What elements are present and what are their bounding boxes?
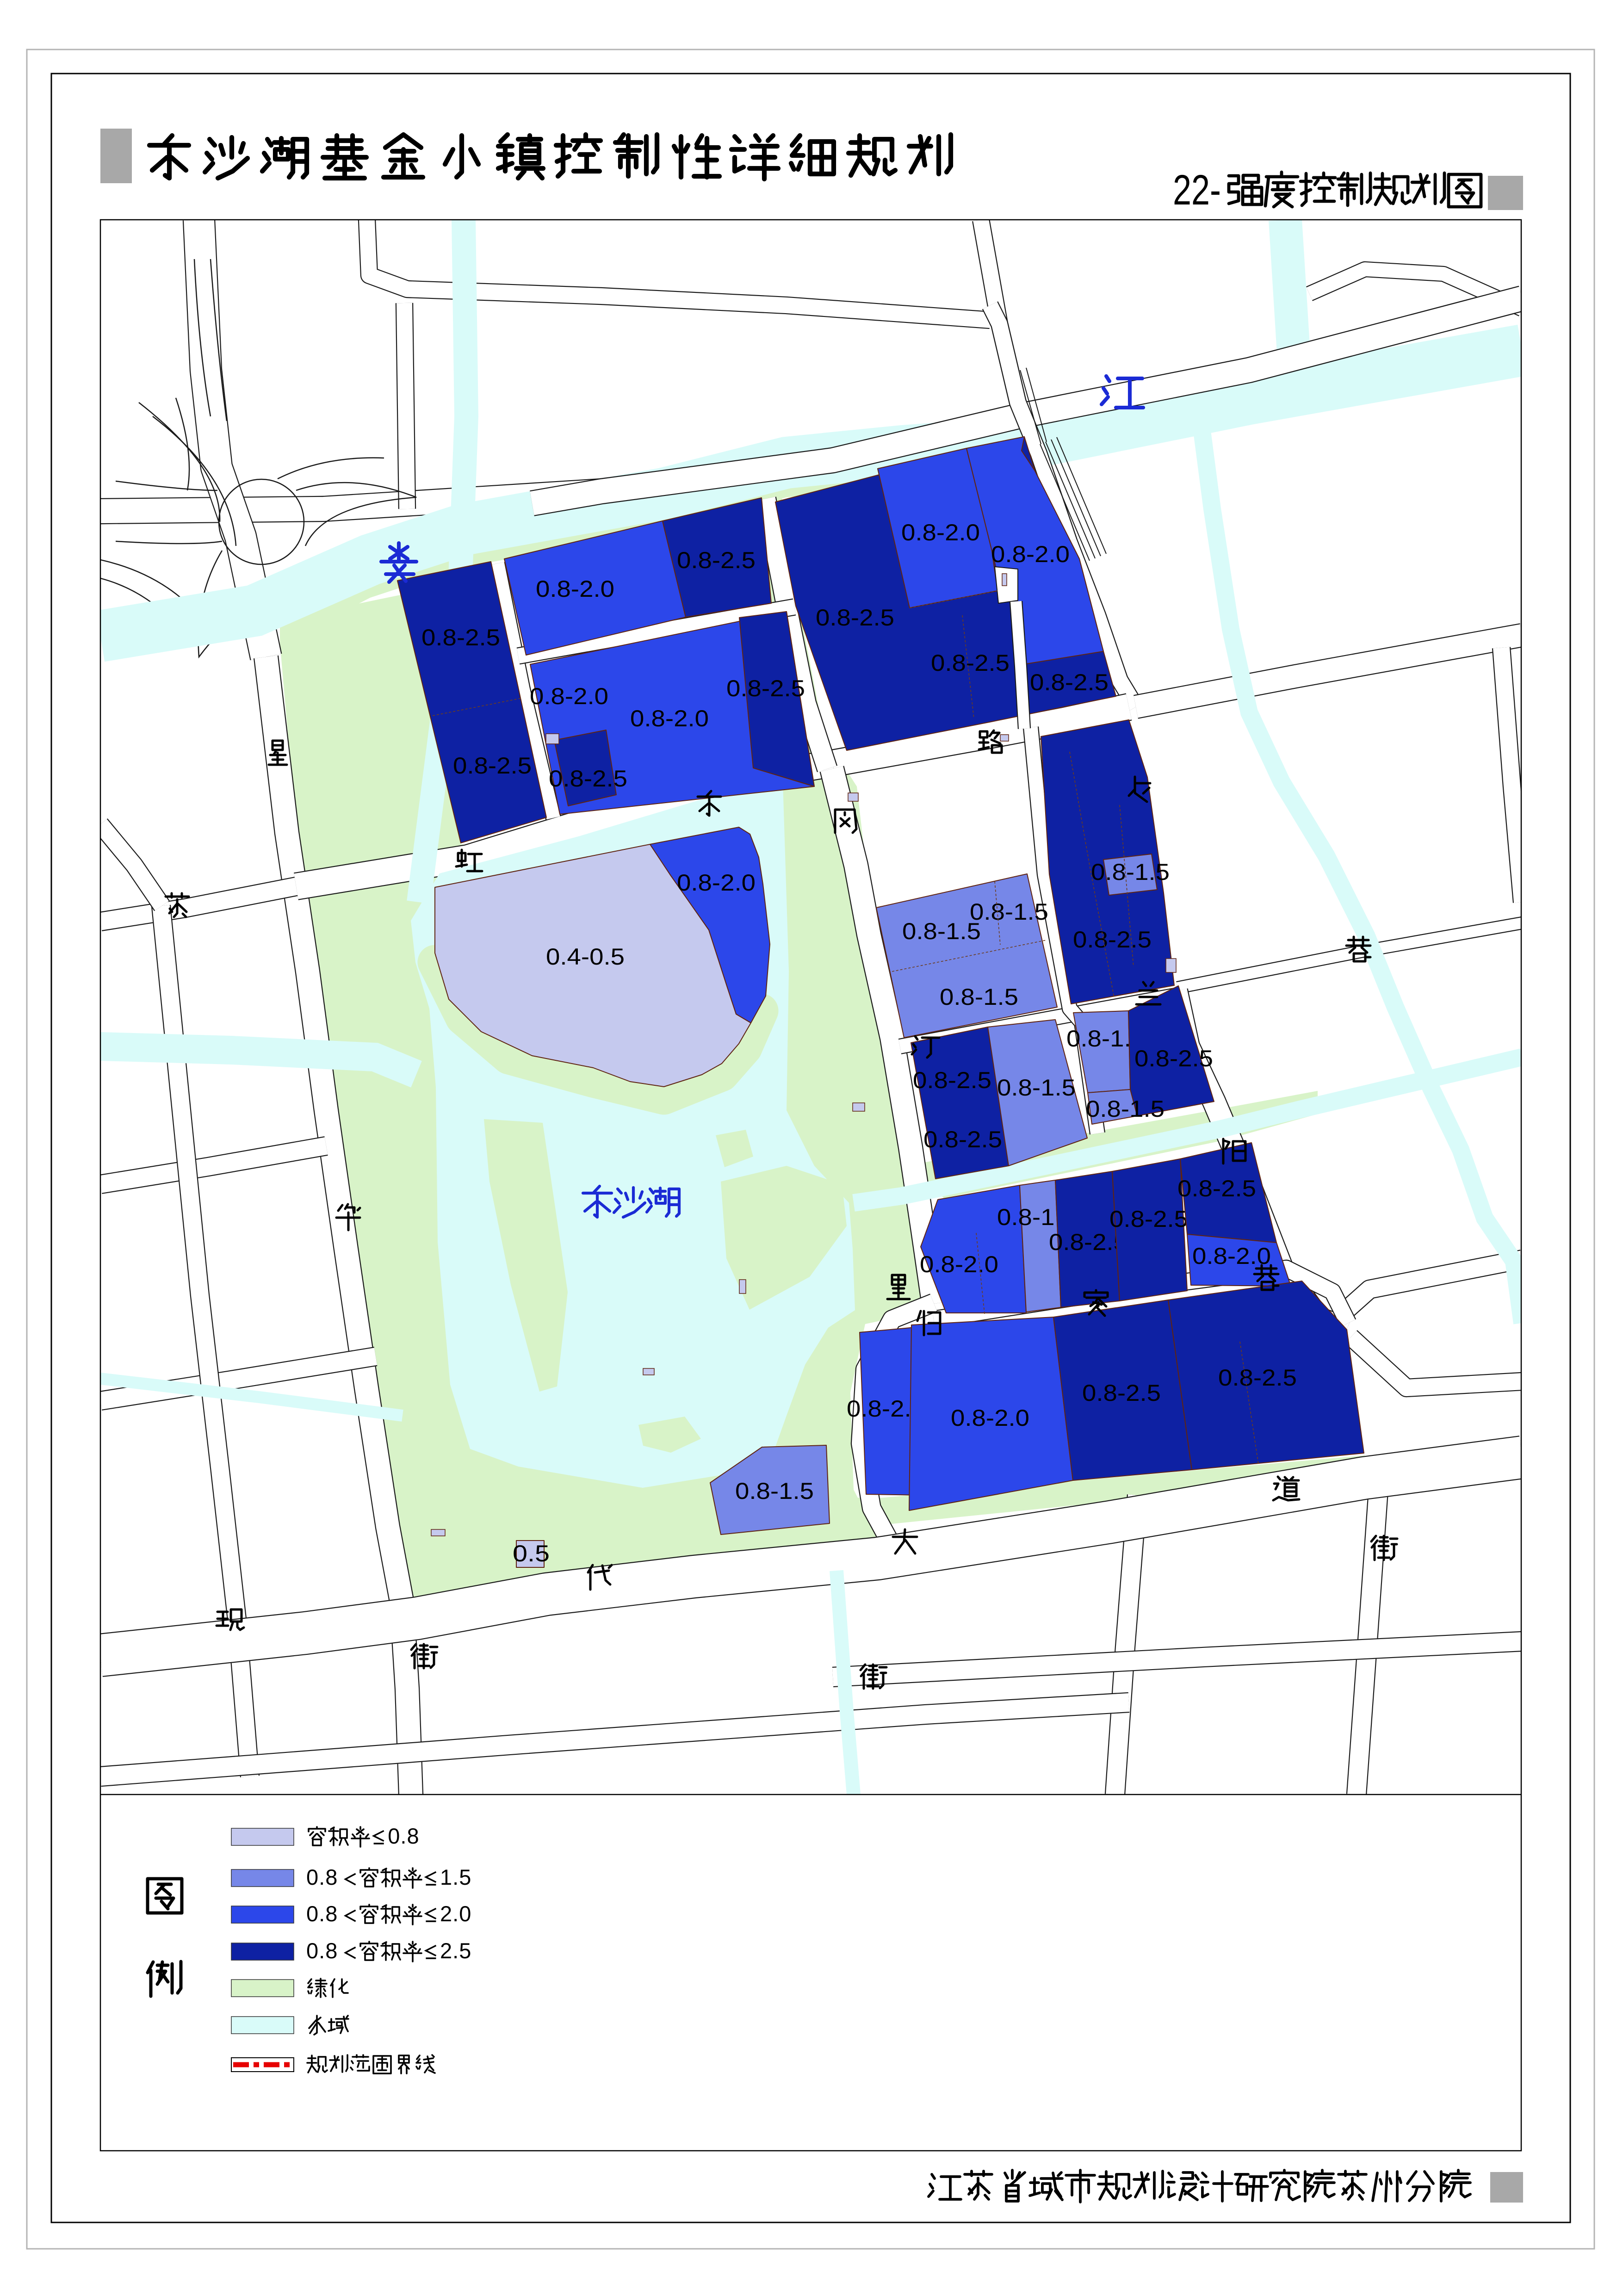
svg-text:0.8-2.0: 0.8-2.0 bbox=[630, 706, 709, 731]
svg-text:0.8: 0.8 bbox=[306, 1901, 338, 1926]
svg-text:1.5: 1.5 bbox=[440, 1865, 471, 1889]
svg-text:0.8-2.5: 0.8-2.5 bbox=[816, 605, 894, 631]
svg-text:0.8-1.5: 0.8-1.5 bbox=[970, 899, 1048, 925]
svg-text:0.8-2.5: 0.8-2.5 bbox=[549, 766, 627, 792]
svg-text:0.8-2.5: 0.8-2.5 bbox=[1082, 1380, 1161, 1406]
svg-text:0.8-1.5: 0.8-1.5 bbox=[902, 918, 981, 944]
svg-text:0.8-2.0: 0.8-2.0 bbox=[951, 1405, 1029, 1431]
svg-text:0.8: 0.8 bbox=[388, 1824, 419, 1848]
svg-text:0.8-2.5: 0.8-2.5 bbox=[1134, 1046, 1213, 1071]
svg-text:22-: 22- bbox=[1173, 167, 1221, 214]
svg-text:0.8-2.0: 0.8-2.0 bbox=[677, 870, 756, 896]
svg-text:0.8-2.5: 0.8-2.5 bbox=[1218, 1365, 1297, 1391]
svg-text:2.0: 2.0 bbox=[440, 1901, 471, 1926]
svg-text:0.8-2.5: 0.8-2.5 bbox=[1109, 1206, 1188, 1232]
svg-text:0.8-2.5: 0.8-2.5 bbox=[421, 625, 500, 650]
svg-text:0.8-2.5: 0.8-2.5 bbox=[1030, 669, 1109, 695]
svg-text:0.8-2.0: 0.8-2.0 bbox=[920, 1251, 998, 1277]
svg-text:0.8-2.5: 0.8-2.5 bbox=[677, 547, 756, 573]
svg-text:0.8-2.5: 0.8-2.5 bbox=[1177, 1176, 1256, 1201]
svg-text:0.8-2.5: 0.8-2.5 bbox=[453, 753, 532, 779]
svg-text:0.8-2.0: 0.8-2.0 bbox=[536, 576, 614, 602]
svg-text:2.5: 2.5 bbox=[440, 1938, 471, 1963]
svg-text:0.8: 0.8 bbox=[306, 1938, 338, 1963]
svg-text:0.8-2.0: 0.8-2.0 bbox=[530, 683, 608, 709]
svg-text:0.8-2.5: 0.8-2.5 bbox=[913, 1067, 991, 1093]
svg-text:0.8-2.5: 0.8-2.5 bbox=[726, 675, 805, 701]
svg-text:0.5: 0.5 bbox=[513, 1541, 550, 1566]
svg-text:0.8-2.0: 0.8-2.0 bbox=[991, 541, 1070, 567]
svg-text:0.8-1.5: 0.8-1.5 bbox=[997, 1075, 1076, 1101]
svg-text:0.8-2.5: 0.8-2.5 bbox=[1073, 927, 1152, 953]
svg-text:0.8-1.5: 0.8-1.5 bbox=[1086, 1096, 1165, 1122]
svg-text:0.8-1.5: 0.8-1.5 bbox=[940, 984, 1018, 1010]
svg-text:0.8-2.5: 0.8-2.5 bbox=[931, 650, 1010, 676]
svg-text:0.8-2.0: 0.8-2.0 bbox=[901, 520, 980, 545]
svg-text:0.8-1.5: 0.8-1.5 bbox=[735, 1478, 814, 1504]
svg-text:0.8: 0.8 bbox=[306, 1865, 338, 1889]
svg-text:0.8-1.5: 0.8-1.5 bbox=[1091, 859, 1170, 885]
svg-text:0.8-2.0: 0.8-2.0 bbox=[1192, 1243, 1271, 1269]
svg-text:0.4-0.5: 0.4-0.5 bbox=[546, 944, 625, 970]
svg-text:0.8-2.5: 0.8-2.5 bbox=[923, 1126, 1002, 1152]
